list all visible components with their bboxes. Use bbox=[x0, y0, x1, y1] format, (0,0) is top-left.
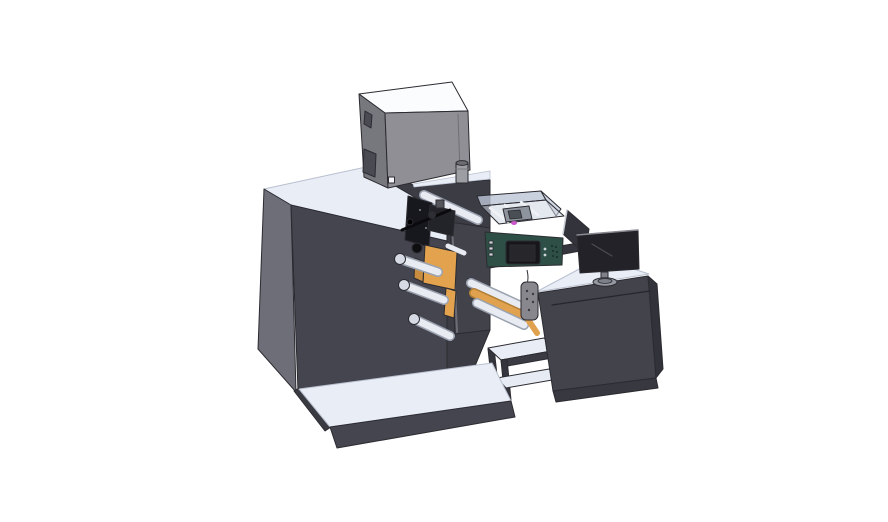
vent-dot bbox=[551, 245, 553, 247]
control-box bbox=[485, 232, 563, 267]
cabinet-left-face bbox=[258, 189, 296, 392]
monitor-base-inner bbox=[598, 279, 612, 284]
panel-button bbox=[544, 248, 547, 251]
canister-cap bbox=[456, 161, 468, 166]
machine-assembly-render bbox=[0, 0, 888, 522]
cad-render-stage bbox=[0, 0, 888, 522]
pendant-button bbox=[528, 309, 530, 311]
panel-key bbox=[489, 253, 493, 256]
pendant-button bbox=[526, 290, 528, 292]
monitor-screen bbox=[577, 230, 639, 273]
panel-button bbox=[544, 254, 547, 257]
inner-mechanism-dark bbox=[508, 210, 522, 219]
pendant-body bbox=[521, 282, 538, 320]
pendant-button bbox=[532, 293, 534, 295]
roller-2-cap bbox=[399, 280, 410, 291]
head-block bbox=[436, 200, 444, 208]
box-foot-pad bbox=[389, 177, 395, 183]
canister bbox=[456, 161, 468, 183]
head-dot bbox=[419, 209, 421, 211]
vent-dot bbox=[552, 250, 554, 252]
roller-3-cap bbox=[409, 314, 420, 325]
head-dot bbox=[425, 227, 427, 229]
vent-dot bbox=[556, 256, 558, 258]
panel-key bbox=[489, 241, 493, 244]
head-gear bbox=[429, 212, 436, 219]
magenta-cartridge bbox=[511, 221, 517, 225]
vent-dot bbox=[556, 251, 558, 253]
head-pin bbox=[407, 219, 413, 225]
pendant-button bbox=[532, 301, 534, 303]
hmi-display bbox=[510, 245, 535, 261]
pendant-control bbox=[521, 270, 538, 320]
roller-1-cap bbox=[395, 254, 406, 265]
canister-body bbox=[456, 163, 468, 183]
vent-dot bbox=[552, 255, 554, 257]
head-knob bbox=[412, 243, 422, 253]
pendant-button bbox=[526, 298, 528, 300]
printer-box bbox=[359, 82, 470, 188]
vent-dot bbox=[555, 246, 557, 248]
panel-key bbox=[489, 247, 493, 250]
box-window-lower bbox=[363, 149, 376, 177]
